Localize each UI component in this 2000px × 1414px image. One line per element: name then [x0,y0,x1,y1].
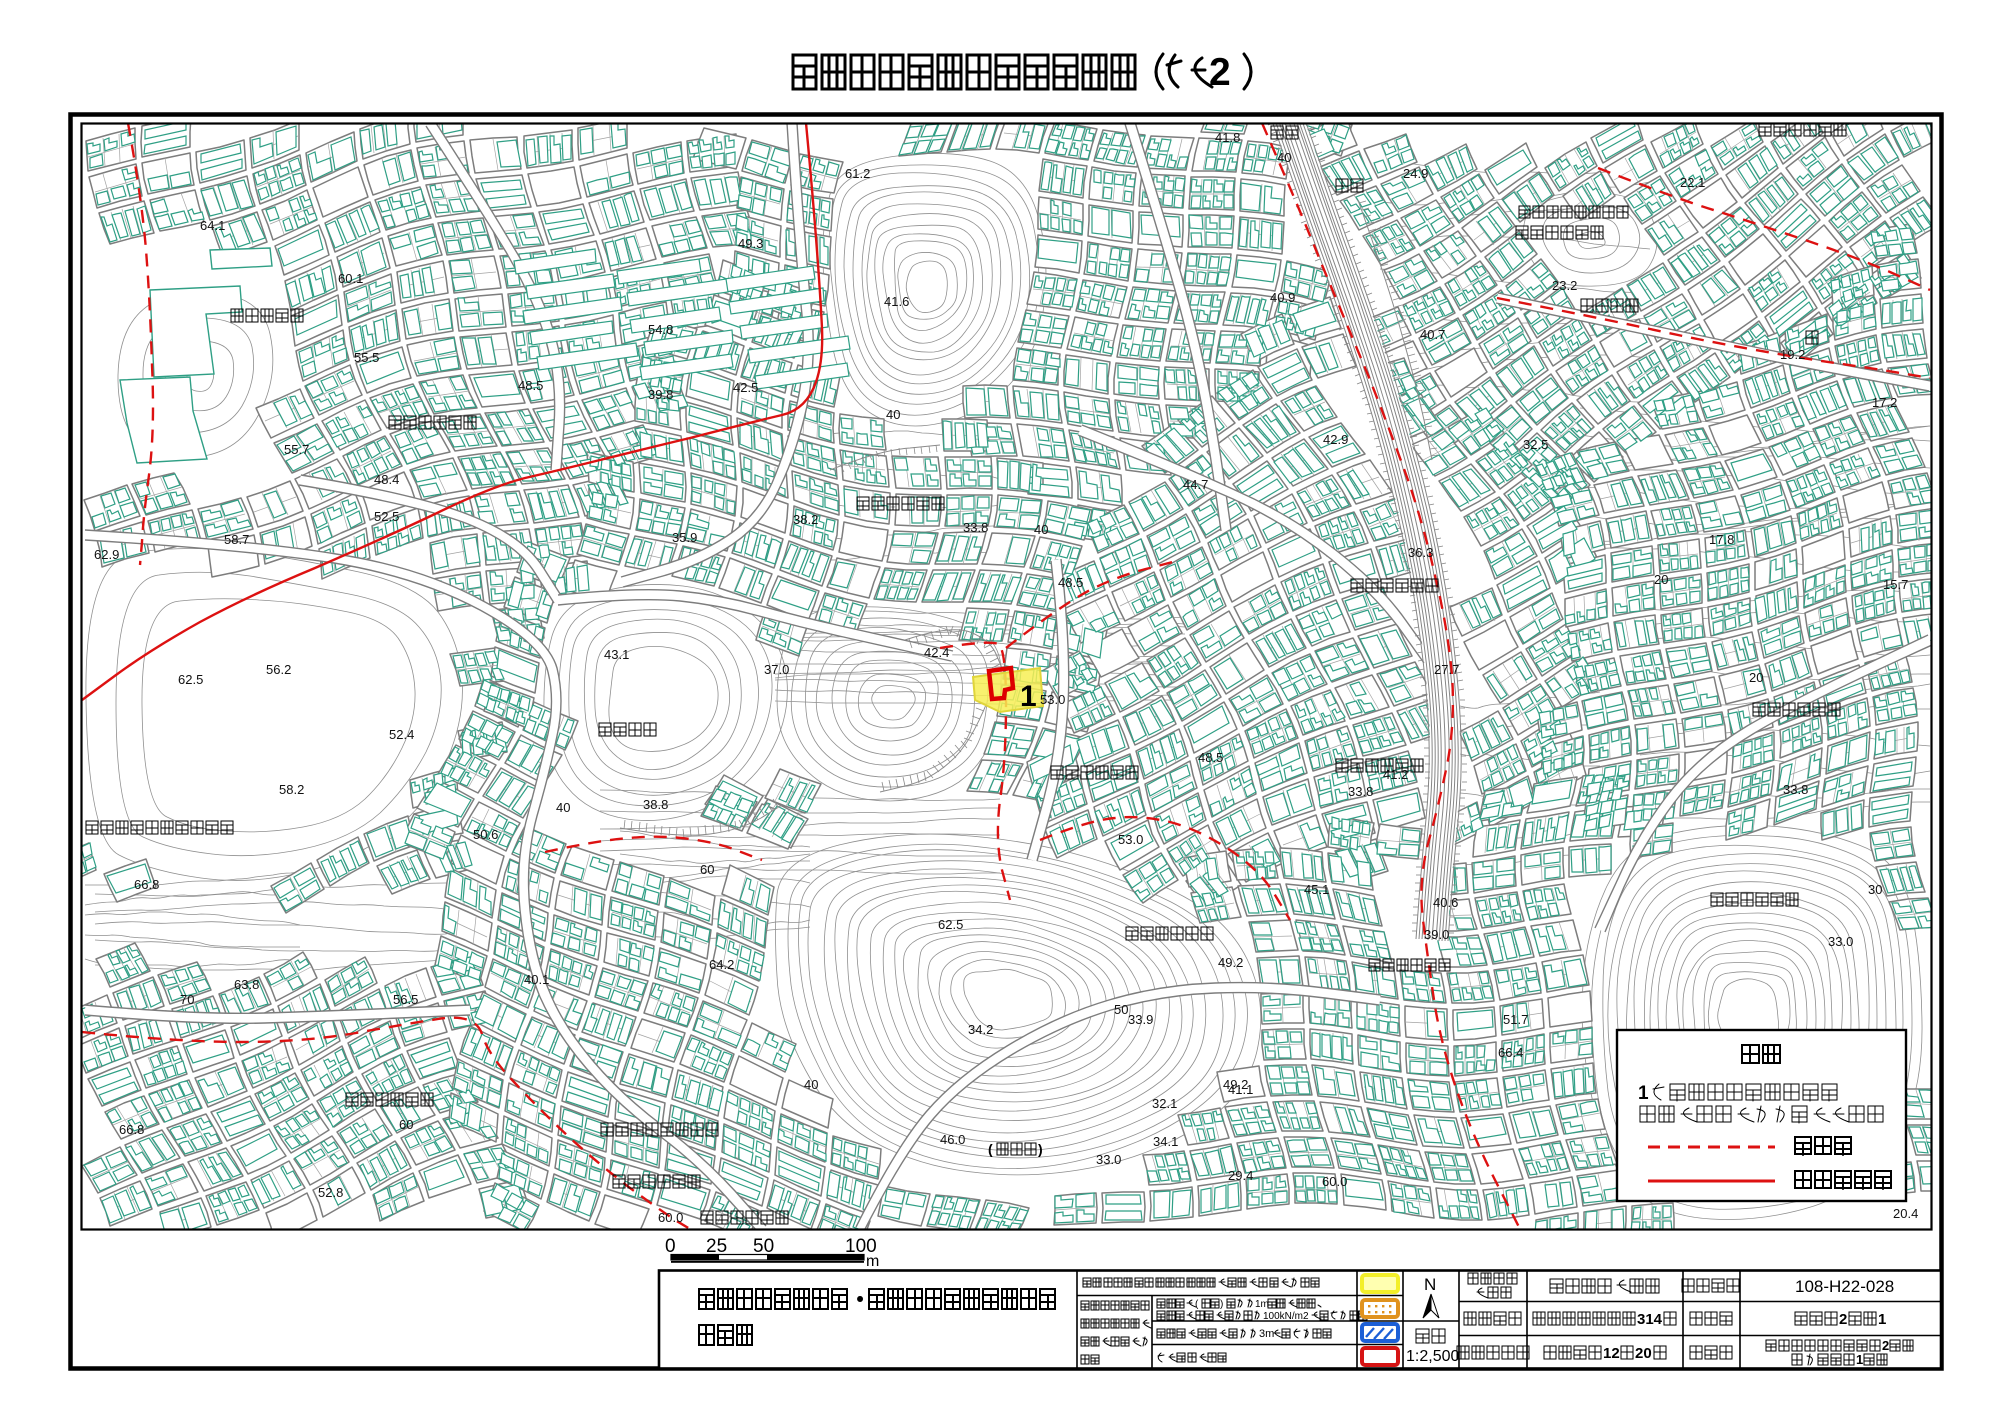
svg-text:2: 2 [1209,51,1231,94]
svg-text:60: 60 [399,1117,413,1132]
svg-text:33.8: 33.8 [1783,782,1808,797]
svg-text:0: 0 [665,1236,676,1257]
svg-text:33.0: 33.0 [1828,934,1853,949]
svg-text:33.0: 33.0 [1096,1152,1121,1167]
svg-text:52.8: 52.8 [318,1185,343,1200]
svg-text:40.6: 40.6 [1433,895,1458,910]
svg-text:32.1: 32.1 [1152,1096,1177,1111]
svg-text:46.0: 46.0 [940,1132,965,1147]
svg-text:17.2: 17.2 [1872,395,1897,410]
svg-text:34.1: 34.1 [1153,1134,1178,1149]
svg-text:40.1: 40.1 [524,972,549,987]
svg-text:(: ( [988,1141,993,1157]
svg-text:22.1: 22.1 [1680,175,1705,190]
svg-text:29.4: 29.4 [1228,1168,1253,1183]
svg-text:50: 50 [1114,1002,1128,1017]
svg-text:17.8: 17.8 [1709,532,1734,547]
svg-text:52.5: 52.5 [374,509,399,524]
svg-text:41.2: 41.2 [1383,767,1408,782]
svg-text:20.4: 20.4 [1893,1206,1918,1221]
svg-text:55.5: 55.5 [354,350,379,365]
svg-text:41.6: 41.6 [884,294,909,309]
svg-text:62.9: 62.9 [94,547,119,562]
svg-text:54.8: 54.8 [648,322,673,337]
svg-text:62.5: 62.5 [178,672,203,687]
svg-text:45.1: 45.1 [1304,882,1329,897]
svg-text:52.4: 52.4 [389,727,414,742]
svg-text:53.0: 53.0 [1118,832,1143,847]
svg-text:66.8: 66.8 [119,1122,144,1137]
svg-text:35.9: 35.9 [672,530,697,545]
svg-text:40: 40 [886,407,900,422]
svg-text:23.2: 23.2 [1552,278,1577,293]
svg-text:56.2: 56.2 [266,662,291,677]
svg-text:44.7: 44.7 [1183,477,1208,492]
svg-text:42.5: 42.5 [733,380,758,395]
svg-text:48.5: 48.5 [1058,575,1083,590]
svg-text:2: 2 [1882,1338,1889,1353]
svg-text:64.1: 64.1 [200,218,225,233]
svg-text:60.0: 60.0 [1322,1174,1347,1189]
svg-text:): ) [1038,1141,1043,1157]
svg-text:N: N [1424,1275,1436,1294]
svg-text:39.8: 39.8 [648,387,673,402]
svg-text:39.0: 39.0 [1424,927,1449,942]
svg-text:12: 12 [1603,1345,1620,1362]
svg-text:20: 20 [1749,670,1763,685]
svg-text:1: 1 [1020,680,1037,713]
svg-text:): ) [1220,1299,1223,1310]
svg-text:27.7: 27.7 [1434,662,1459,677]
svg-text:48.5: 48.5 [518,378,543,393]
svg-text:49.3: 49.3 [738,236,763,251]
svg-text:60.1: 60.1 [338,271,363,286]
svg-text:60: 60 [700,862,714,877]
svg-text:51.7: 51.7 [1503,1012,1528,1027]
svg-text:50.6: 50.6 [473,827,498,842]
svg-text:32.5: 32.5 [1523,437,1548,452]
svg-text:48.4: 48.4 [374,472,399,487]
svg-text:33.9: 33.9 [1128,1012,1153,1027]
svg-text:25: 25 [706,1236,727,1257]
svg-text:53.0: 53.0 [1040,692,1065,707]
svg-text:48.5: 48.5 [1198,750,1223,765]
svg-text:43.1: 43.1 [604,647,629,662]
svg-text:49.2: 49.2 [1218,955,1243,970]
svg-text:41.8: 41.8 [1215,130,1240,145]
svg-text:40: 40 [804,1077,818,1092]
svg-text:20: 20 [1635,1345,1652,1362]
svg-text:66.4: 66.4 [1498,1045,1523,1060]
svg-text:20: 20 [1654,572,1668,587]
svg-text:33.8: 33.8 [963,520,988,535]
svg-text:55.7: 55.7 [284,442,309,457]
svg-text:41.1: 41.1 [1228,1082,1253,1097]
svg-text:40: 40 [556,800,570,815]
svg-text:38.8: 38.8 [643,797,668,812]
svg-text:m: m [866,1253,879,1270]
svg-text:60.0: 60.0 [658,1210,683,1225]
svg-text:40.9: 40.9 [1270,290,1295,305]
svg-text:100kN/m2: 100kN/m2 [1263,1311,1309,1322]
svg-text:63.8: 63.8 [234,977,259,992]
svg-text:1:2,500: 1:2,500 [1406,1348,1459,1365]
svg-text:33.8: 33.8 [1348,784,1373,799]
svg-text:42.9: 42.9 [1323,432,1348,447]
svg-text:2: 2 [1839,1311,1847,1328]
svg-text:56.5: 56.5 [393,992,418,1007]
svg-text:40.7: 40.7 [1420,327,1445,342]
svg-text:50: 50 [753,1236,774,1257]
svg-text:42.4: 42.4 [924,645,949,660]
svg-text:19.2: 19.2 [1780,347,1805,362]
svg-text:34.2: 34.2 [968,1022,993,1037]
svg-text:3m: 3m [1259,1328,1274,1340]
svg-text:58.2: 58.2 [279,782,304,797]
svg-text:1: 1 [1638,1083,1649,1104]
svg-text:38.2: 38.2 [793,512,818,527]
svg-text:36.3: 36.3 [1408,545,1433,560]
svg-text:15.7: 15.7 [1883,577,1908,592]
svg-text:40: 40 [1034,522,1048,537]
svg-text:66.8: 66.8 [134,877,159,892]
svg-text:64.2: 64.2 [709,957,734,972]
svg-text:30: 30 [1868,882,1882,897]
svg-text:1: 1 [1856,1352,1863,1367]
svg-text:70: 70 [180,992,194,1007]
svg-text:61.2: 61.2 [845,166,870,181]
svg-text:37.0: 37.0 [764,662,789,677]
svg-text:58.7: 58.7 [224,532,249,547]
svg-text:108-H22-028: 108-H22-028 [1795,1277,1894,1296]
svg-text:314: 314 [1637,1311,1663,1328]
svg-text:1m: 1m [1255,1299,1269,1310]
svg-text:24.9: 24.9 [1403,166,1428,181]
svg-text:1: 1 [1878,1311,1886,1328]
svg-text:40: 40 [1277,150,1291,165]
svg-text:62.5: 62.5 [938,917,963,932]
